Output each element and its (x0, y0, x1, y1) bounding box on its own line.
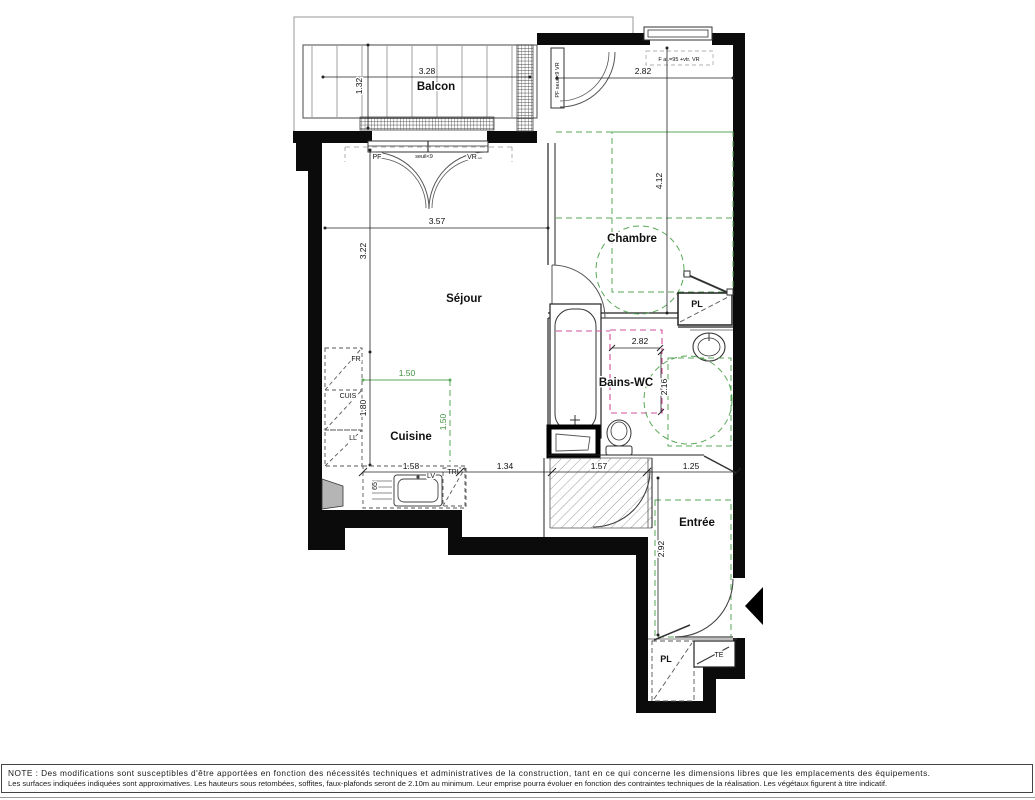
accessibility-zone-bains (644, 356, 732, 446)
storage-unit (549, 427, 598, 456)
entry-arrow-icon (745, 587, 763, 625)
dim-cuisine-180: 1.80 (358, 399, 368, 416)
room-label-chambre: Chambre (607, 233, 657, 245)
sejour-room: 3.57 3.22 Séjour (324, 149, 550, 354)
balcony-grate (360, 117, 494, 130)
floor-plan-drawing: 3.28 1.32 Balcon PF seuil<9 VR PF seuil<… (0, 0, 1035, 764)
dim-sejour-height: 3.22 (358, 242, 368, 259)
dim-chambre-height: 4.12 (654, 172, 664, 189)
dim-bains-height: 2.16 (659, 378, 669, 395)
note-box: NOTE : Des modifications sont susceptibl… (1, 764, 1033, 793)
note-line-1: NOTE : Des modifications sont susceptibl… (8, 768, 1026, 778)
closet-label: PL (691, 299, 703, 309)
label-vr: VR (467, 154, 477, 161)
label-window-spec: F al.=95 +vtr. VR (658, 57, 699, 63)
dim-157: 1.57 (591, 461, 608, 471)
balcony-grate-side (517, 45, 533, 131)
room-label-bains-wc: Bains-WC (599, 377, 653, 389)
toilet-icon (606, 420, 632, 455)
dim-125: 1.25 (683, 461, 700, 471)
cuisine-room: FR CUIS LL 1.50 1.50 1.80 Cuisine 65 LV … (322, 348, 466, 509)
room-label-cuisine: Cuisine (390, 431, 432, 443)
dim-134: 1.34 (497, 461, 514, 471)
floor-plan-page: 3.28 1.32 Balcon PF seuil<9 VR PF seuil<… (0, 0, 1035, 800)
note-line-2: Les surfaces indiquées indiquées sont ap… (8, 779, 1026, 788)
pl-door (654, 625, 690, 640)
label-cooker: CUIS (340, 393, 357, 400)
dim-cuisine-150v: 1.50 (438, 413, 448, 430)
room-label-balcon: Balcon (417, 81, 455, 93)
label-washer: LL (349, 435, 357, 442)
entree-room: 2.92 Entrée (648, 477, 763, 641)
bains-wc-room: 2.82 2.16 Bains-WC (548, 304, 736, 473)
chambre-window: F al.=95 +vtr. VR (644, 27, 713, 65)
room-label-sejour: Séjour (446, 293, 482, 305)
closet-chambre: PL (678, 271, 733, 325)
door-swing-right (429, 152, 486, 209)
bains-entree-door (704, 456, 736, 473)
dim-chambre-width: 2.82 (635, 66, 652, 76)
dim-entree-height: 2.92 (656, 540, 666, 557)
bottom-rule (0, 797, 1035, 798)
label-dishwasher: LV (427, 473, 435, 480)
dim-balcon-depth: 1.32 (354, 77, 364, 94)
electrical-panel-label: TE (715, 652, 724, 659)
label-pf-seuil-vr: PF seuil<9 VR (555, 62, 561, 97)
walls (293, 33, 745, 713)
bathtub-icon (550, 304, 601, 444)
room-label-entree: Entrée (679, 517, 715, 529)
dim-cuisine-150h: 1.50 (399, 368, 416, 378)
dim-sejour-width: 3.57 (429, 216, 446, 226)
balcony: 3.28 1.32 Balcon (303, 44, 537, 132)
door-swing (560, 52, 615, 107)
closet-entree-label: PL (660, 654, 672, 664)
duct (322, 479, 343, 509)
label-fridge: FR (351, 356, 360, 363)
label-seuil: seuil<9 (415, 154, 433, 160)
dim-counter-depth: 65 (372, 482, 379, 490)
dim-balcon-width: 3.28 (419, 66, 436, 76)
dim-158: 1.58 (403, 461, 420, 471)
accessibility-zone-chambre (556, 132, 733, 314)
label-pf: PF (373, 154, 382, 161)
dim-bains-width: 2.82 (632, 336, 649, 346)
